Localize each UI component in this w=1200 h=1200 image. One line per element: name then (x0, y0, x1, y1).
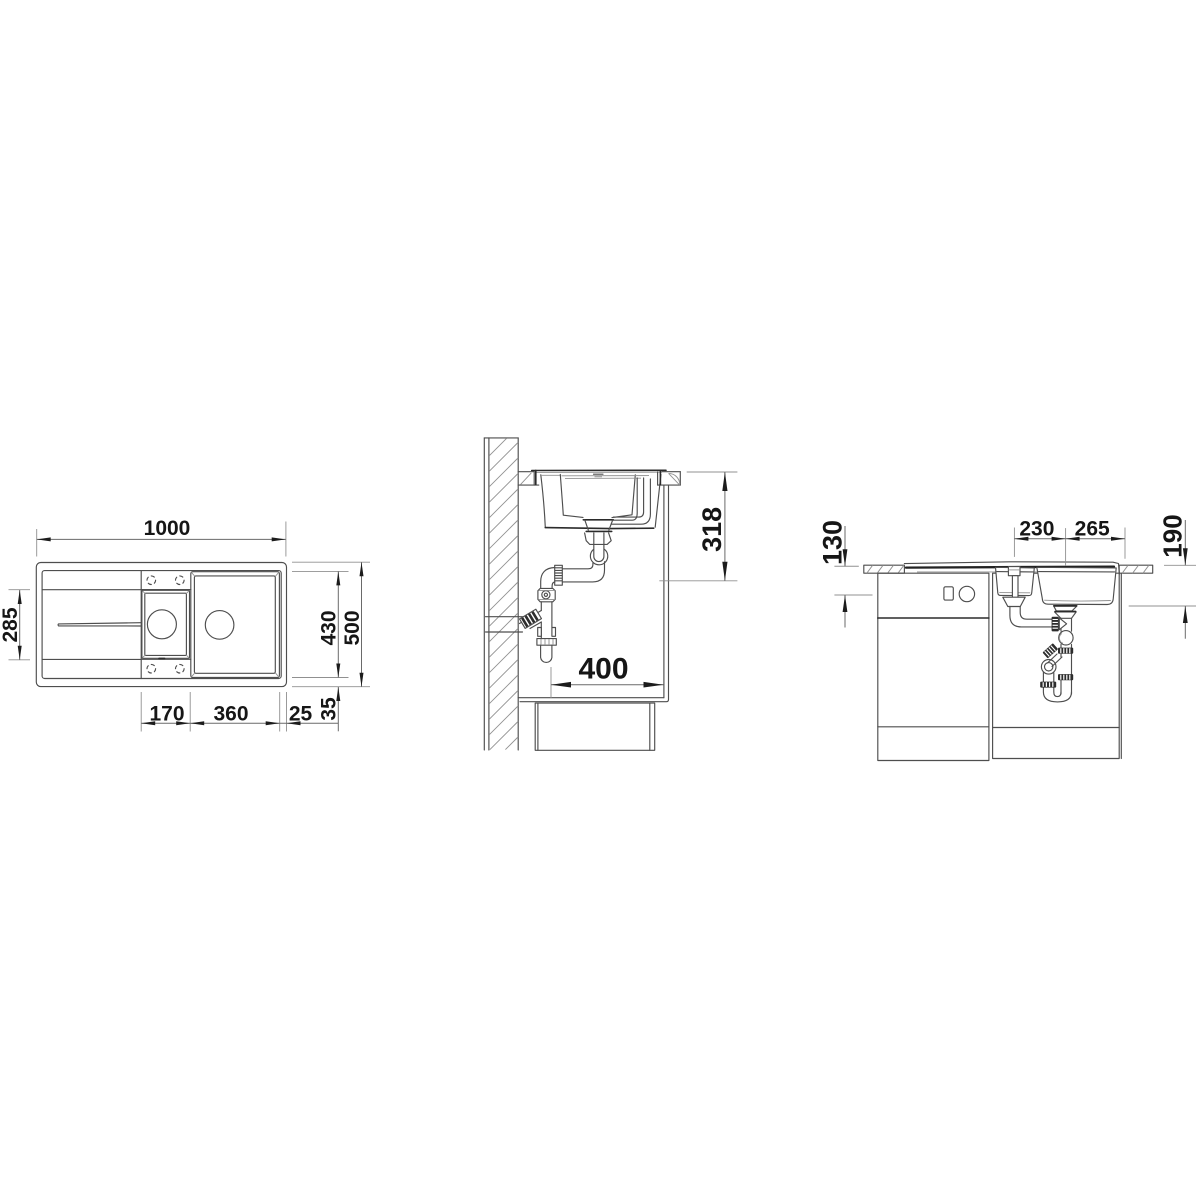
svg-text:285: 285 (0, 607, 22, 642)
svg-text:1000: 1000 (144, 517, 191, 540)
svg-text:265: 265 (1075, 518, 1110, 541)
svg-text:318: 318 (697, 507, 727, 552)
svg-text:400: 400 (578, 653, 628, 686)
svg-text:35: 35 (317, 697, 340, 721)
svg-text:25: 25 (289, 702, 313, 725)
svg-text:360: 360 (213, 702, 248, 725)
svg-text:190: 190 (1157, 514, 1187, 557)
svg-text:230: 230 (1019, 518, 1054, 541)
svg-text:500: 500 (341, 610, 364, 645)
svg-text:170: 170 (149, 702, 184, 725)
svg-text:430: 430 (317, 610, 340, 645)
svg-text:130: 130 (817, 520, 847, 565)
